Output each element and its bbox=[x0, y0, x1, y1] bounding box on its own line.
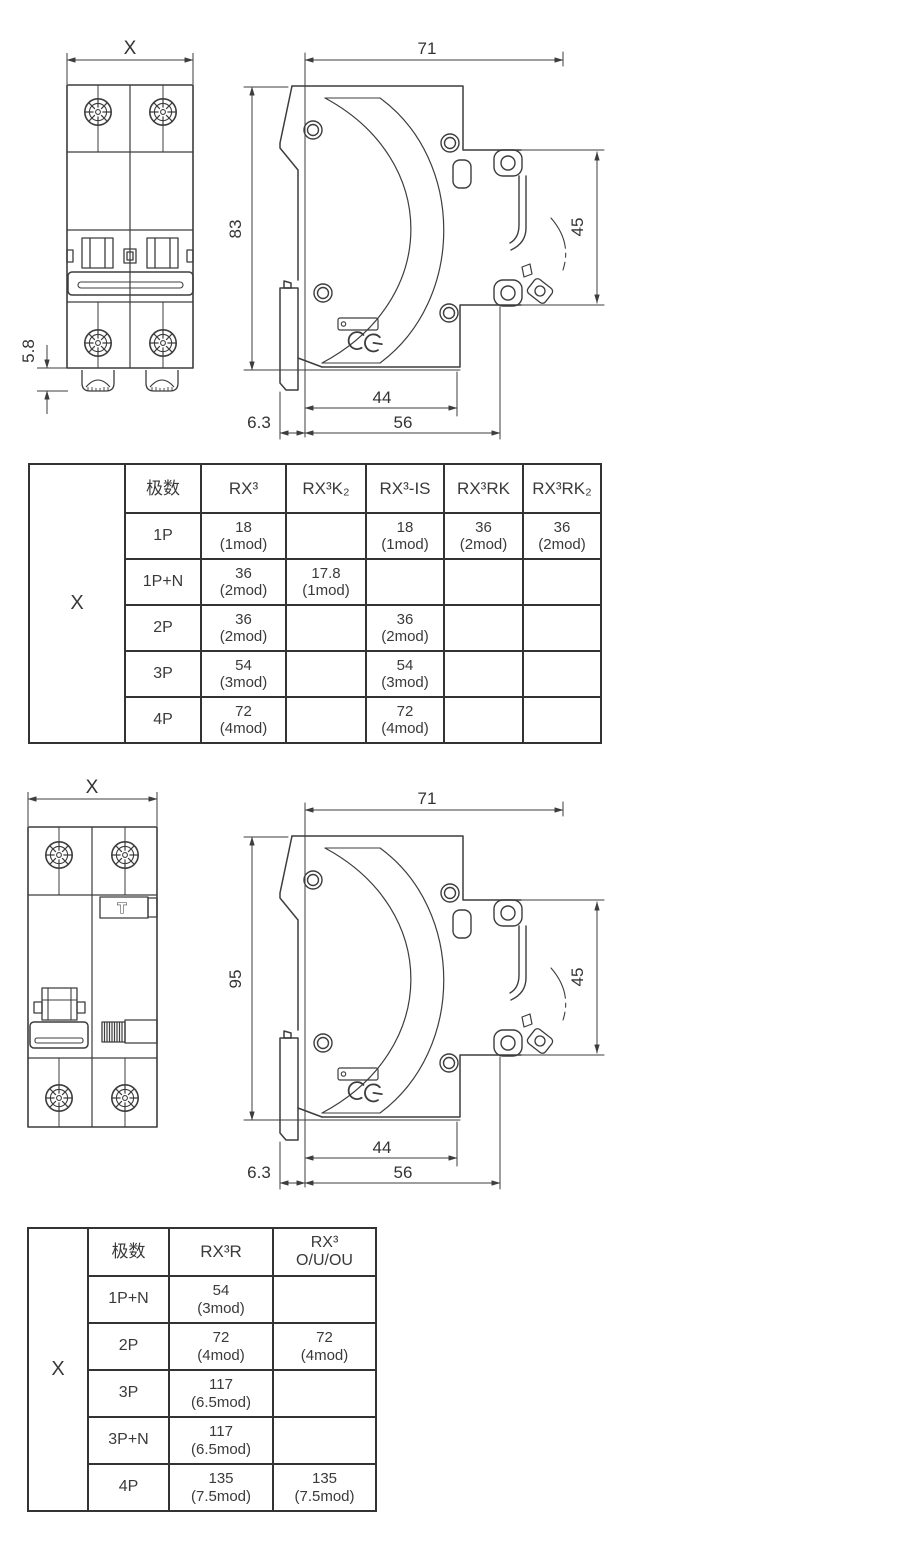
table-cell bbox=[523, 651, 601, 697]
table-cell: 36 (2mod) bbox=[201, 605, 286, 651]
pole-label: 2P bbox=[125, 605, 201, 651]
table-cell bbox=[523, 605, 601, 651]
clip-offset-dimension-label: 6.3 bbox=[247, 413, 271, 432]
terminal-screw bbox=[112, 842, 138, 868]
table-cell bbox=[286, 697, 366, 743]
terminal-screw bbox=[85, 99, 111, 125]
table-cell: 72 (4mod) bbox=[201, 697, 286, 743]
din-rail-dimension-label: 45 bbox=[568, 968, 587, 987]
table-cell: 135 (7.5mod) bbox=[169, 1464, 273, 1511]
table-cell: 18 (1mod) bbox=[366, 513, 444, 559]
table-cell bbox=[523, 697, 601, 743]
dimension-table-bottom: X 极数 RX³R RX³ O/U/OU 1P+N 54 (3mod) 2P 7… bbox=[27, 1227, 377, 1512]
table-cell: 17.8 (1mod) bbox=[286, 559, 366, 605]
table-cell: 135 (7.5mod) bbox=[273, 1464, 376, 1511]
depth-dimension-label: 71 bbox=[418, 39, 437, 58]
side-view-drawing-bottom: 71 95 45 44 56 6.3 bbox=[230, 770, 620, 1200]
table-cell: 117 (6.5mod) bbox=[169, 1370, 273, 1417]
terminal-screw bbox=[150, 99, 176, 125]
depth-dimension-label: 71 bbox=[418, 789, 437, 808]
table-cell bbox=[286, 513, 366, 559]
table-cell: 36 (2mod) bbox=[366, 605, 444, 651]
row-span-label: X bbox=[28, 1228, 88, 1511]
row-span-label: X bbox=[29, 464, 125, 743]
side-view-drawing-top: 71 83 45 44 56 6.3 bbox=[230, 20, 620, 450]
column-header: RX³R bbox=[169, 1228, 273, 1276]
table-cell: 54 (3mod) bbox=[169, 1276, 273, 1323]
table-cell bbox=[286, 651, 366, 697]
breaker-side-profile bbox=[244, 52, 604, 439]
pole-label: 4P bbox=[88, 1464, 169, 1511]
pole-label: 3P+N bbox=[88, 1417, 169, 1464]
pole-label: 1P+N bbox=[125, 559, 201, 605]
table-cell: 72 (4mod) bbox=[273, 1323, 376, 1370]
body-depth-dimension-label: 44 bbox=[373, 388, 392, 407]
column-header: RX³-IS bbox=[366, 464, 444, 513]
terminal-screw bbox=[150, 330, 176, 356]
pole-label: 1P bbox=[125, 513, 201, 559]
terminal-screw bbox=[46, 1085, 72, 1111]
clip-offset-dimension-label: 6.3 bbox=[247, 1163, 271, 1182]
table-cell: 36 (2mod) bbox=[444, 513, 523, 559]
pole-label: 2P bbox=[88, 1323, 169, 1370]
body-depth-dimension-label: 44 bbox=[373, 1138, 392, 1157]
table-cell bbox=[523, 559, 601, 605]
table-cell: 18 (1mod) bbox=[201, 513, 286, 559]
column-header: RX³RK₂ bbox=[523, 464, 601, 513]
dimension-table-top: X 极数 RX³ RX³K₂ RX³-IS RX³RK RX³RK₂ 1P 18… bbox=[28, 463, 602, 744]
terminal-screw bbox=[46, 842, 72, 868]
table-cell bbox=[444, 559, 523, 605]
terminal-screw bbox=[112, 1085, 138, 1111]
table-cell: 54 (3mod) bbox=[366, 651, 444, 697]
front-view-bottom-screws bbox=[10, 770, 230, 1200]
column-header: RX³ bbox=[201, 464, 286, 513]
table-cell bbox=[286, 605, 366, 651]
table-cell: 36 (2mod) bbox=[523, 513, 601, 559]
table-cell: 36 (2mod) bbox=[201, 559, 286, 605]
table-cell bbox=[273, 1417, 376, 1464]
terminal-screw bbox=[85, 330, 111, 356]
table-cell: 72 (4mod) bbox=[169, 1323, 273, 1370]
pole-label: 1P+N bbox=[88, 1276, 169, 1323]
table-cell bbox=[273, 1370, 376, 1417]
pole-label: 3P bbox=[125, 651, 201, 697]
table-cell: 72 (4mod) bbox=[366, 697, 444, 743]
pole-label: 4P bbox=[125, 697, 201, 743]
total-depth-dimension-label: 56 bbox=[394, 1163, 413, 1182]
breaker-side-profile bbox=[244, 802, 604, 1189]
front-view-top-screws bbox=[10, 20, 230, 440]
table-cell: 117 (6.5mod) bbox=[169, 1417, 273, 1464]
table-cell bbox=[273, 1276, 376, 1323]
table-cell bbox=[366, 559, 444, 605]
table-cell bbox=[444, 605, 523, 651]
table-cell bbox=[444, 651, 523, 697]
table-cell: 54 (3mod) bbox=[201, 651, 286, 697]
column-header: RX³ O/U/OU bbox=[273, 1228, 376, 1276]
din-rail-dimension-label: 45 bbox=[568, 218, 587, 237]
table-cell bbox=[444, 697, 523, 743]
column-header: 极数 bbox=[125, 464, 201, 513]
pole-label: 3P bbox=[88, 1370, 169, 1417]
total-depth-dimension-label: 56 bbox=[394, 413, 413, 432]
column-header: 极数 bbox=[88, 1228, 169, 1276]
column-header: RX³RK bbox=[444, 464, 523, 513]
datasheet-page: X bbox=[0, 0, 900, 1554]
column-header: RX³K₂ bbox=[286, 464, 366, 513]
